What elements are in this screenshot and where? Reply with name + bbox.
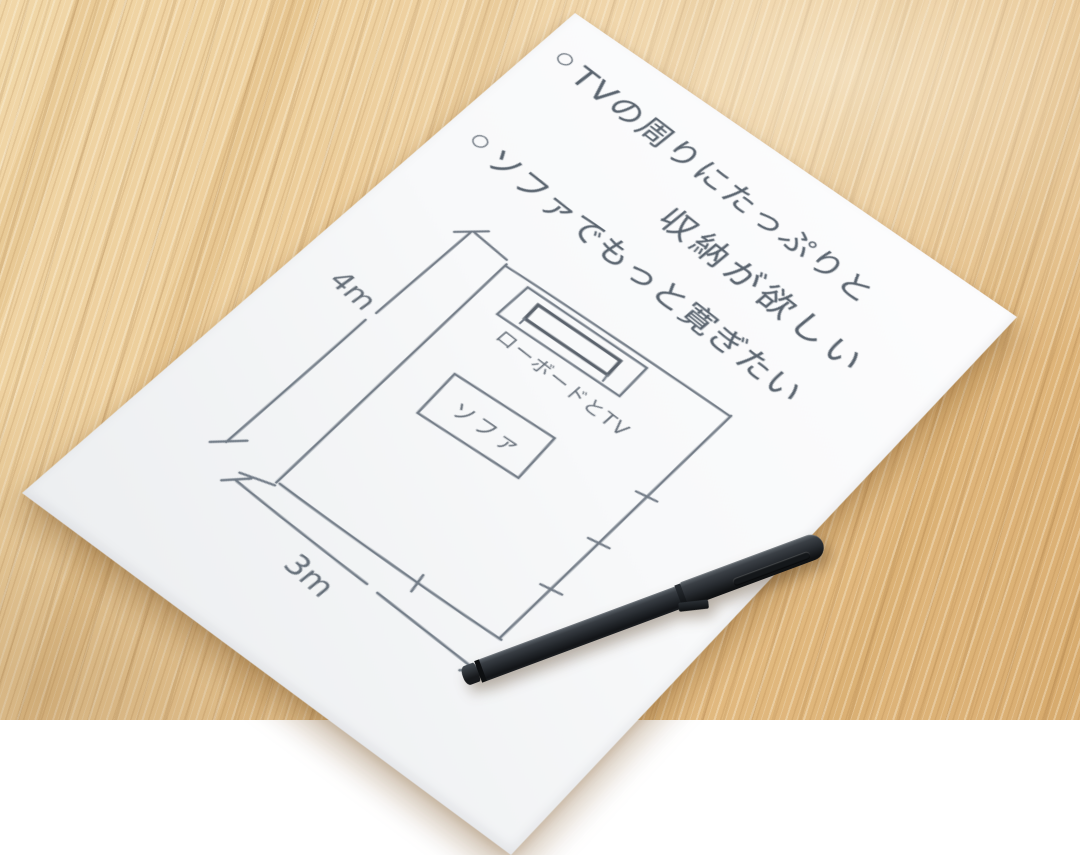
- dimension-tick: [210, 426, 247, 456]
- dimension-3m: [212, 462, 505, 682]
- sofa-label: ソファ: [445, 398, 529, 460]
- dimension-4m-label: 4m: [321, 266, 384, 316]
